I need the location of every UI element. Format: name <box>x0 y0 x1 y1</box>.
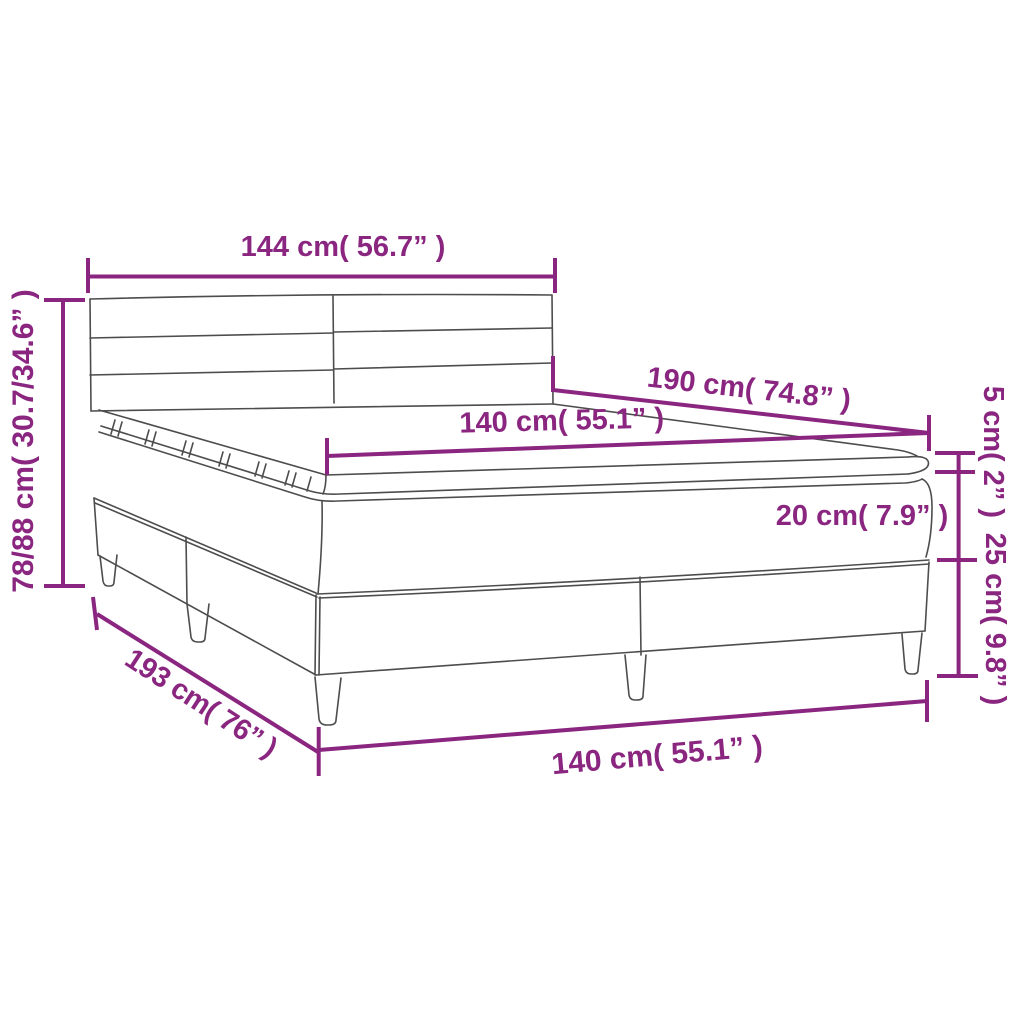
svg-text:140 cm( 55.1” ): 140 cm( 55.1” ) <box>550 730 764 781</box>
svg-text:140 cm( 55.1” ): 140 cm( 55.1” ) <box>459 402 665 439</box>
svg-text:144 cm( 56.7” ): 144 cm( 56.7” ) <box>241 231 446 263</box>
svg-text:5 cm( 2” ): 5 cm( 2” ) <box>977 386 1009 518</box>
svg-text:190 cm( 74.8” ): 190 cm( 74.8” ) <box>645 362 852 417</box>
svg-text:25 cm( 9.8” ): 25 cm( 9.8” ) <box>979 533 1011 705</box>
svg-text:193 cm( 76” ): 193 cm( 76” ) <box>119 643 282 765</box>
svg-text:20 cm( 7.9” ): 20 cm( 7.9” ) <box>776 500 948 532</box>
svg-text:78/88 cm( 30.7/34.6” ): 78/88 cm( 30.7/34.6” ) <box>7 289 40 593</box>
